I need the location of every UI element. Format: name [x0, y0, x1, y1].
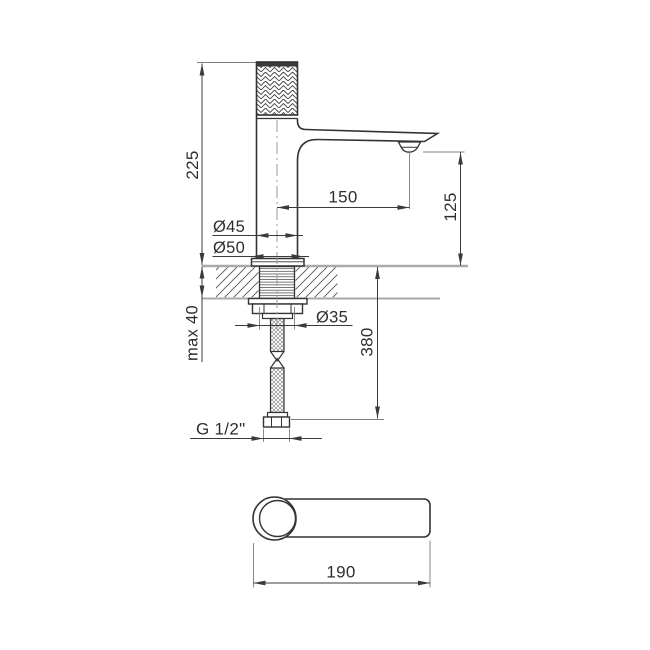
- dim-label-deck-thickness: max 40: [184, 305, 202, 361]
- washer-plate: [249, 299, 308, 305]
- spout-top-view: [280, 499, 430, 537]
- dim-hose-length: 380: [358, 267, 378, 419]
- dim-label-handle-length: 190: [326, 563, 355, 582]
- drawing-page: 225 max 40 Ø45 Ø50 150 125: [0, 0, 650, 650]
- dim-label-outlet-height: 125: [441, 192, 460, 221]
- spout-outline: [298, 119, 438, 259]
- dim-base-diameter: Ø50: [213, 239, 310, 257]
- shank-collar: [263, 314, 293, 319]
- faucet-technical-drawing: 225 max 40 Ø45 Ø50 150 125: [0, 0, 650, 650]
- dim-label-hose-length: 380: [358, 327, 377, 356]
- hose-lower: [271, 368, 285, 413]
- dim-total-height: 225: [183, 64, 202, 266]
- faucet-body: [249, 62, 438, 427]
- dim-label-total-height: 225: [183, 150, 202, 179]
- dim-outlet-height: 125: [441, 153, 461, 266]
- dim-label-spout-reach: 150: [328, 188, 357, 207]
- connector-hex: [264, 417, 290, 427]
- dim-connection-thread: G 1/2": [190, 420, 322, 439]
- counter-hatch-right: [296, 267, 338, 297]
- top-view: [253, 497, 430, 540]
- dim-label-base-diameter: Ø50: [213, 239, 245, 257]
- counter-section: [202, 266, 468, 299]
- dim-label-connection-thread: G 1/2": [196, 420, 245, 439]
- dim-label-shank-diameter: Ø35: [316, 309, 348, 327]
- dim-deck-thickness: max 40: [184, 267, 203, 363]
- handle-knurl-pattern: [257, 67, 298, 116]
- dim-handle-length: 190: [254, 563, 431, 584]
- counter-hatch-left: [216, 267, 259, 297]
- base-flange: [252, 259, 305, 267]
- dim-label-body-diameter: Ø45: [213, 218, 245, 236]
- dim-body-diameter: Ø45: [213, 218, 304, 236]
